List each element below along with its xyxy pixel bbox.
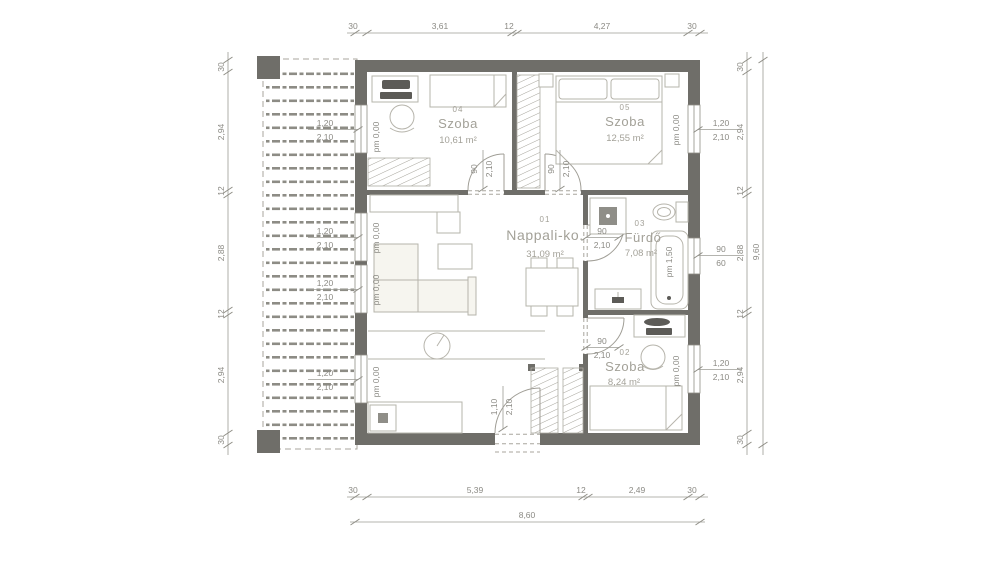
window-living-left-1 xyxy=(355,213,367,261)
dim-label: 2,94 xyxy=(735,366,745,383)
dim-label: 30 xyxy=(735,62,745,72)
svg-text:1,10: 1,10 xyxy=(489,398,499,415)
room-04-label: 04 Szoba 10,61 m² xyxy=(438,105,478,146)
svg-text:05: 05 xyxy=(620,103,631,112)
svg-text:Fürdő: Fürdő xyxy=(625,230,662,245)
dimension-left: 30 2,94 12 2,88 12 2,94 30 xyxy=(216,52,233,455)
toilet-icon xyxy=(653,202,688,222)
svg-text:2,10: 2,10 xyxy=(594,240,611,250)
dim-label: 2,88 xyxy=(735,244,745,261)
dim-total-height: 9,60 xyxy=(751,243,761,260)
room-02-label: 02 Szoba 8,24 m² xyxy=(605,348,645,388)
window-kitchen-left xyxy=(355,355,367,403)
sill-label: pm 0,00 xyxy=(371,366,381,397)
svg-text:Nappali-ko.: Nappali-ko. xyxy=(506,227,583,243)
washbasin-icon xyxy=(595,289,641,309)
dim-label: 4,27 xyxy=(594,21,611,31)
svg-text:Szoba: Szoba xyxy=(605,359,645,374)
svg-text:1,20: 1,20 xyxy=(317,278,334,288)
svg-text:2,10: 2,10 xyxy=(484,160,494,177)
dimension-bottom: 30 5,39 12 2,49 30 8,60 xyxy=(347,485,708,525)
dim-label: 30 xyxy=(348,485,358,495)
bed-room02-icon xyxy=(590,386,682,430)
shower-icon xyxy=(590,198,626,234)
desk-room02-icon xyxy=(634,315,685,337)
sill-label: pm 0,00 xyxy=(671,355,681,386)
dim-label: 2,94 xyxy=(216,366,226,383)
wardrobe-room05-icon xyxy=(517,75,540,188)
dim-label: 30 xyxy=(216,62,226,72)
svg-text:8,24 m²: 8,24 m² xyxy=(608,377,640,388)
svg-text:2,10: 2,10 xyxy=(713,372,730,382)
sill-label: pm 0,00 xyxy=(371,222,381,253)
window-living-left-2 xyxy=(355,265,367,313)
room-01-label: 01 Nappali-ko. 31,09 m² xyxy=(506,215,583,260)
svg-text:1,20: 1,20 xyxy=(317,226,334,236)
svg-text:2,10: 2,10 xyxy=(713,132,730,142)
svg-text:01: 01 xyxy=(540,215,551,224)
dimension-right: 30 2,94 12 2,88 12 2,94 30 9,60 xyxy=(735,52,768,455)
svg-text:90: 90 xyxy=(546,164,556,174)
terrace-post-top xyxy=(257,56,280,79)
chair-room04-icon xyxy=(390,105,414,132)
svg-text:1,20: 1,20 xyxy=(317,118,334,128)
wardrobe-room04-icon xyxy=(368,158,430,186)
dining-table-icon xyxy=(526,258,578,316)
dim-label: 2,94 xyxy=(735,123,745,140)
terrace-post-bottom xyxy=(257,430,280,453)
svg-text:10,61 m²: 10,61 m² xyxy=(439,135,477,146)
svg-text:2,10: 2,10 xyxy=(317,382,334,392)
svg-text:60: 60 xyxy=(716,258,726,268)
dim-label: 30 xyxy=(348,21,358,31)
svg-text:03: 03 xyxy=(635,219,646,228)
svg-text:31,09 m²: 31,09 m² xyxy=(526,249,564,260)
sideboard-icon xyxy=(370,195,460,233)
window-bath-right xyxy=(688,238,700,274)
svg-text:2,10: 2,10 xyxy=(504,398,514,415)
bed-room04-icon xyxy=(430,75,506,107)
dim-label: 12 xyxy=(216,186,226,196)
svg-text:90: 90 xyxy=(469,164,479,174)
svg-text:02: 02 xyxy=(620,348,631,357)
dim-label: 12 xyxy=(735,309,745,319)
dim-label: 2,94 xyxy=(216,123,226,140)
sill-label: pm 0,00 xyxy=(371,121,381,152)
svg-text:12,55 m²: 12,55 m² xyxy=(606,133,644,144)
dim-label: 3,61 xyxy=(432,21,449,31)
svg-text:1,20: 1,20 xyxy=(713,118,730,128)
room-03-label: 03 Fürdő 7,08 m² xyxy=(625,219,662,259)
floorplan-canvas: 30 3,61 12 4,27 30 30 5,39 12 2,49 30 8,… xyxy=(0,0,1000,563)
coffee-table-icon xyxy=(438,244,472,269)
dimension-top: 30 3,61 12 4,27 30 xyxy=(347,21,708,36)
svg-text:7,08 m²: 7,08 m² xyxy=(625,248,657,259)
dim-label: 2,88 xyxy=(216,244,226,261)
dim-label: 12 xyxy=(576,485,586,495)
svg-text:04: 04 xyxy=(453,105,464,114)
floorplan-drawing: 30 3,61 12 4,27 30 30 5,39 12 2,49 30 8,… xyxy=(0,0,1000,563)
wardrobe-entry-1-icon xyxy=(531,368,558,433)
dim-label: 2,49 xyxy=(629,485,646,495)
desk-room04-icon xyxy=(372,76,418,102)
dim-label: 30 xyxy=(216,435,226,445)
dim-label: 30 xyxy=(687,21,697,31)
svg-text:Szoba: Szoba xyxy=(438,116,478,131)
svg-text:2,10: 2,10 xyxy=(561,160,571,177)
svg-text:Szoba: Szoba xyxy=(605,114,645,129)
dim-label: 12 xyxy=(735,186,745,196)
dim-label: 30 xyxy=(687,485,697,495)
dim-total-width: 8,60 xyxy=(519,510,536,520)
svg-text:2,10: 2,10 xyxy=(317,132,334,142)
window-room04-left xyxy=(355,105,367,153)
terrace-joists xyxy=(266,64,354,442)
terrace xyxy=(257,56,357,453)
sill-label: pm 1,50 xyxy=(664,246,674,277)
wardrobe-entry-2-icon xyxy=(563,368,583,433)
svg-text:2,10: 2,10 xyxy=(317,240,334,250)
dim-label: 12 xyxy=(216,309,226,319)
svg-text:1,20: 1,20 xyxy=(713,358,730,368)
sill-label: pm 0,00 xyxy=(671,114,681,145)
svg-text:90: 90 xyxy=(597,226,607,236)
svg-text:90: 90 xyxy=(716,244,726,254)
dim-label: 12 xyxy=(504,21,514,31)
dim-label: 30 xyxy=(735,435,745,445)
dim-label: 5,39 xyxy=(467,485,484,495)
svg-text:1,20: 1,20 xyxy=(317,368,334,378)
svg-text:90: 90 xyxy=(597,336,607,346)
kitchen-counter-icon xyxy=(368,331,545,433)
svg-text:2,10: 2,10 xyxy=(317,292,334,302)
sill-label: pm 0,00 xyxy=(371,274,381,305)
